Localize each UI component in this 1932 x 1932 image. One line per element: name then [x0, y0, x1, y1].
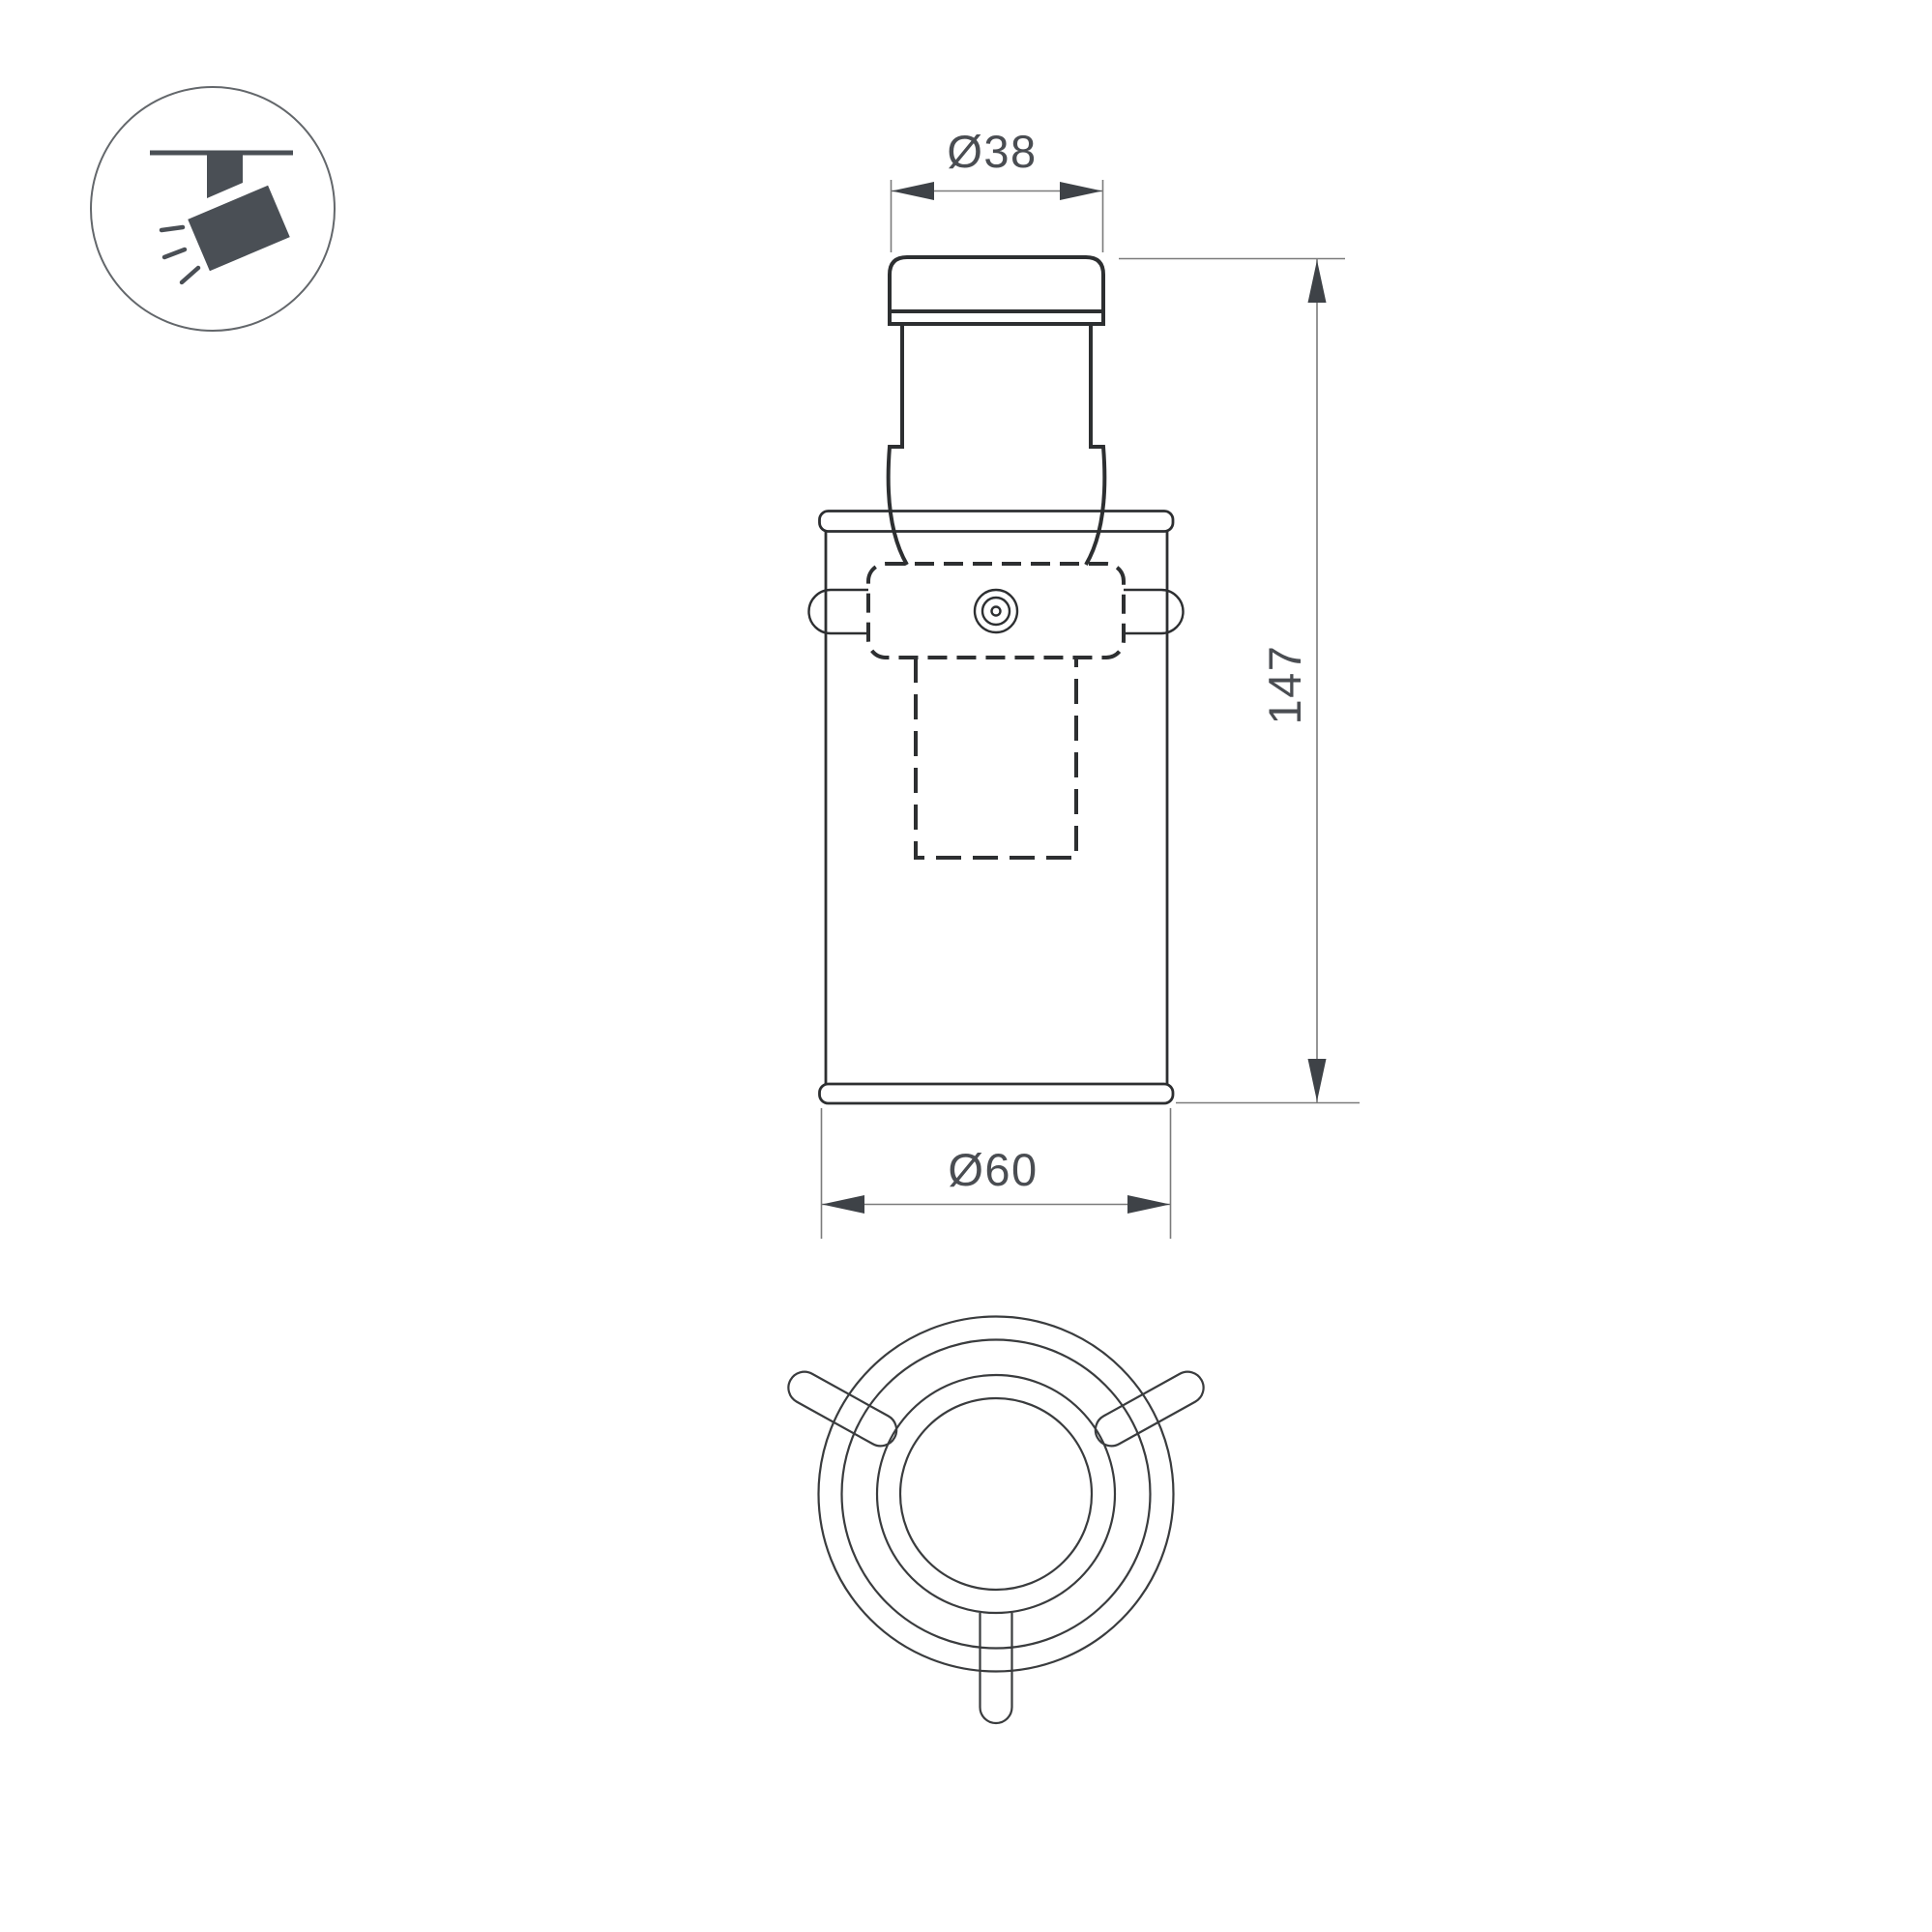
inner-ring-circle [877, 1375, 1115, 1613]
arrowhead-left-icon [822, 1195, 864, 1214]
screw-outer-circle [975, 590, 1017, 632]
second-rim-circle [842, 1340, 1151, 1649]
dim-label-bottom-diameter: Ø60 [948, 1144, 1038, 1195]
neck-right-edge [1086, 324, 1104, 565]
arrowhead-right-icon [1060, 182, 1102, 200]
drawing-page: Ø38 147 Ø60 [0, 0, 1932, 1932]
arrowhead-up-icon [1308, 260, 1327, 303]
arrowhead-left-icon [892, 182, 934, 200]
dimension-top-diameter: Ø38 [892, 126, 1103, 252]
spotlight-head-icon [188, 186, 290, 272]
screw-center-dot [992, 607, 1001, 616]
pin-upper-left [782, 1366, 902, 1451]
neck-left-edge [889, 324, 907, 565]
dim-label-top-diameter: Ø38 [947, 126, 1037, 177]
dimension-height: 147 [1119, 259, 1360, 1103]
bottom-flange [820, 1084, 1174, 1103]
mount-bracket-dashed [868, 564, 1124, 658]
dimension-bottom-diameter: Ø60 [822, 1108, 1171, 1239]
hidden-module-dashed [916, 658, 1076, 858]
adapter-cap-outline [890, 257, 1103, 324]
screw-detail [975, 590, 1017, 632]
dim-label-height: 147 [1259, 645, 1310, 725]
front-view [809, 257, 1184, 1103]
aperture-circle [900, 1398, 1092, 1590]
top-flange [820, 512, 1174, 532]
arrowhead-right-icon [1127, 1195, 1170, 1214]
arrowhead-down-icon [1308, 1059, 1327, 1101]
track-spotlight-icon [91, 87, 335, 331]
bottom-view [782, 1317, 1209, 1724]
pin-upper-right [1090, 1366, 1210, 1451]
pin-bottom [981, 1613, 1012, 1723]
light-rays-icon [161, 227, 198, 282]
left-pin [809, 590, 868, 633]
right-pin [1124, 590, 1184, 633]
track-stem-icon [207, 151, 243, 198]
screw-middle-circle [982, 598, 1010, 625]
technical-drawing: Ø38 147 Ø60 [0, 0, 1932, 1932]
outer-rim-circle [819, 1317, 1174, 1672]
